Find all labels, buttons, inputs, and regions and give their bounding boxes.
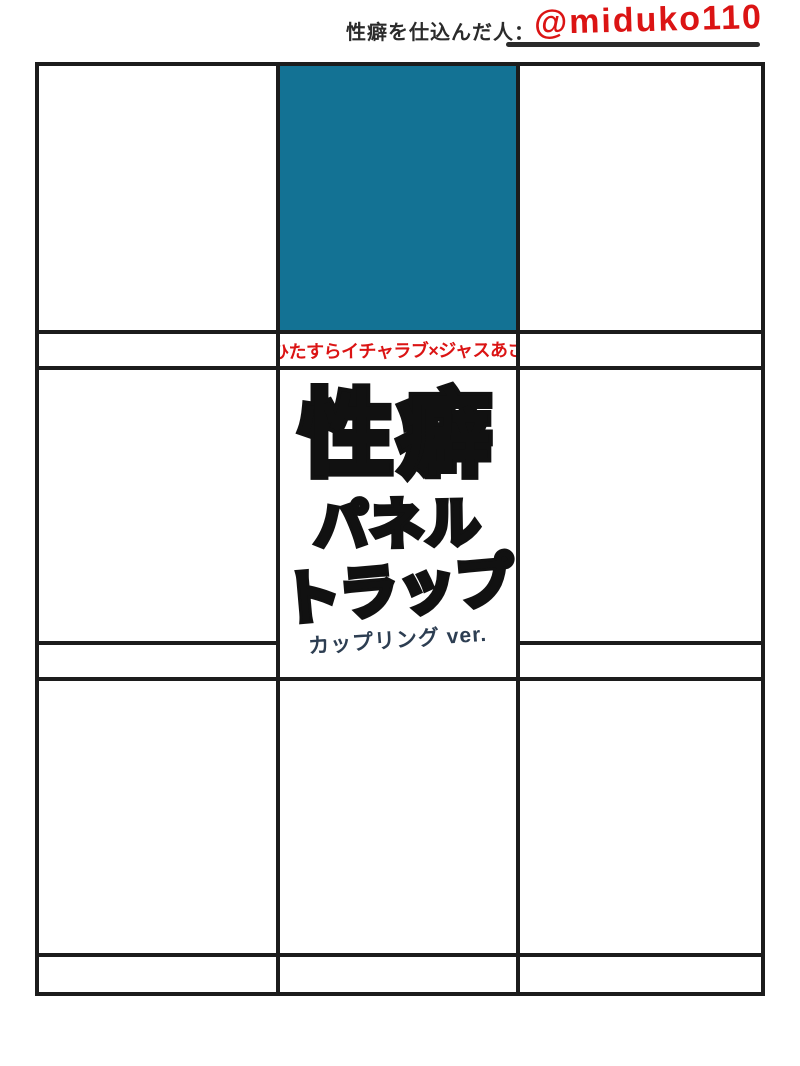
panel-r3c2 [280,681,521,957]
panel-r3c3 [520,681,761,957]
header-handle-text: @miduko110 [534,0,764,43]
panel-r1c2-filled [280,66,521,334]
label-strip-r3c1 [39,957,280,992]
panel-r3c1 [39,681,280,957]
panel-caption-text: ひたすらイチャラブ×ジャスあざ [280,336,521,364]
header-label: 性癖を仕込んだ人： [346,16,535,45]
title-line-2: パネル [313,495,482,555]
label-strip-r2c3 [520,645,761,681]
trap-grid: ひたすらイチャラブ×ジャスあざ 性癖 パネル トラップ カップリング ver. [35,62,765,996]
title-line-1: 性癖 [300,386,496,485]
title-panel: 性癖 パネル トラップ カップリング ver. [280,370,521,681]
panel-r2c3 [520,370,761,645]
panel-r2c1 [39,370,280,645]
label-strip-r1c2: ひたすらイチャラブ×ジャスあざ [280,334,521,370]
header-underline [506,42,760,47]
label-strip-r2c1 [39,645,280,681]
label-strip-r1c3 [520,334,761,370]
label-strip-r3c2 [280,957,521,992]
label-strip-r3c3 [520,957,761,992]
label-strip-r1c1 [39,334,280,370]
panel-r1c1 [39,66,280,334]
trap-template-page: 性癖を仕込んだ人： @miduko110 ひたすらイチャラブ×ジャスあざ 性癖 … [0,0,800,1066]
panel-r1c3 [520,66,761,334]
